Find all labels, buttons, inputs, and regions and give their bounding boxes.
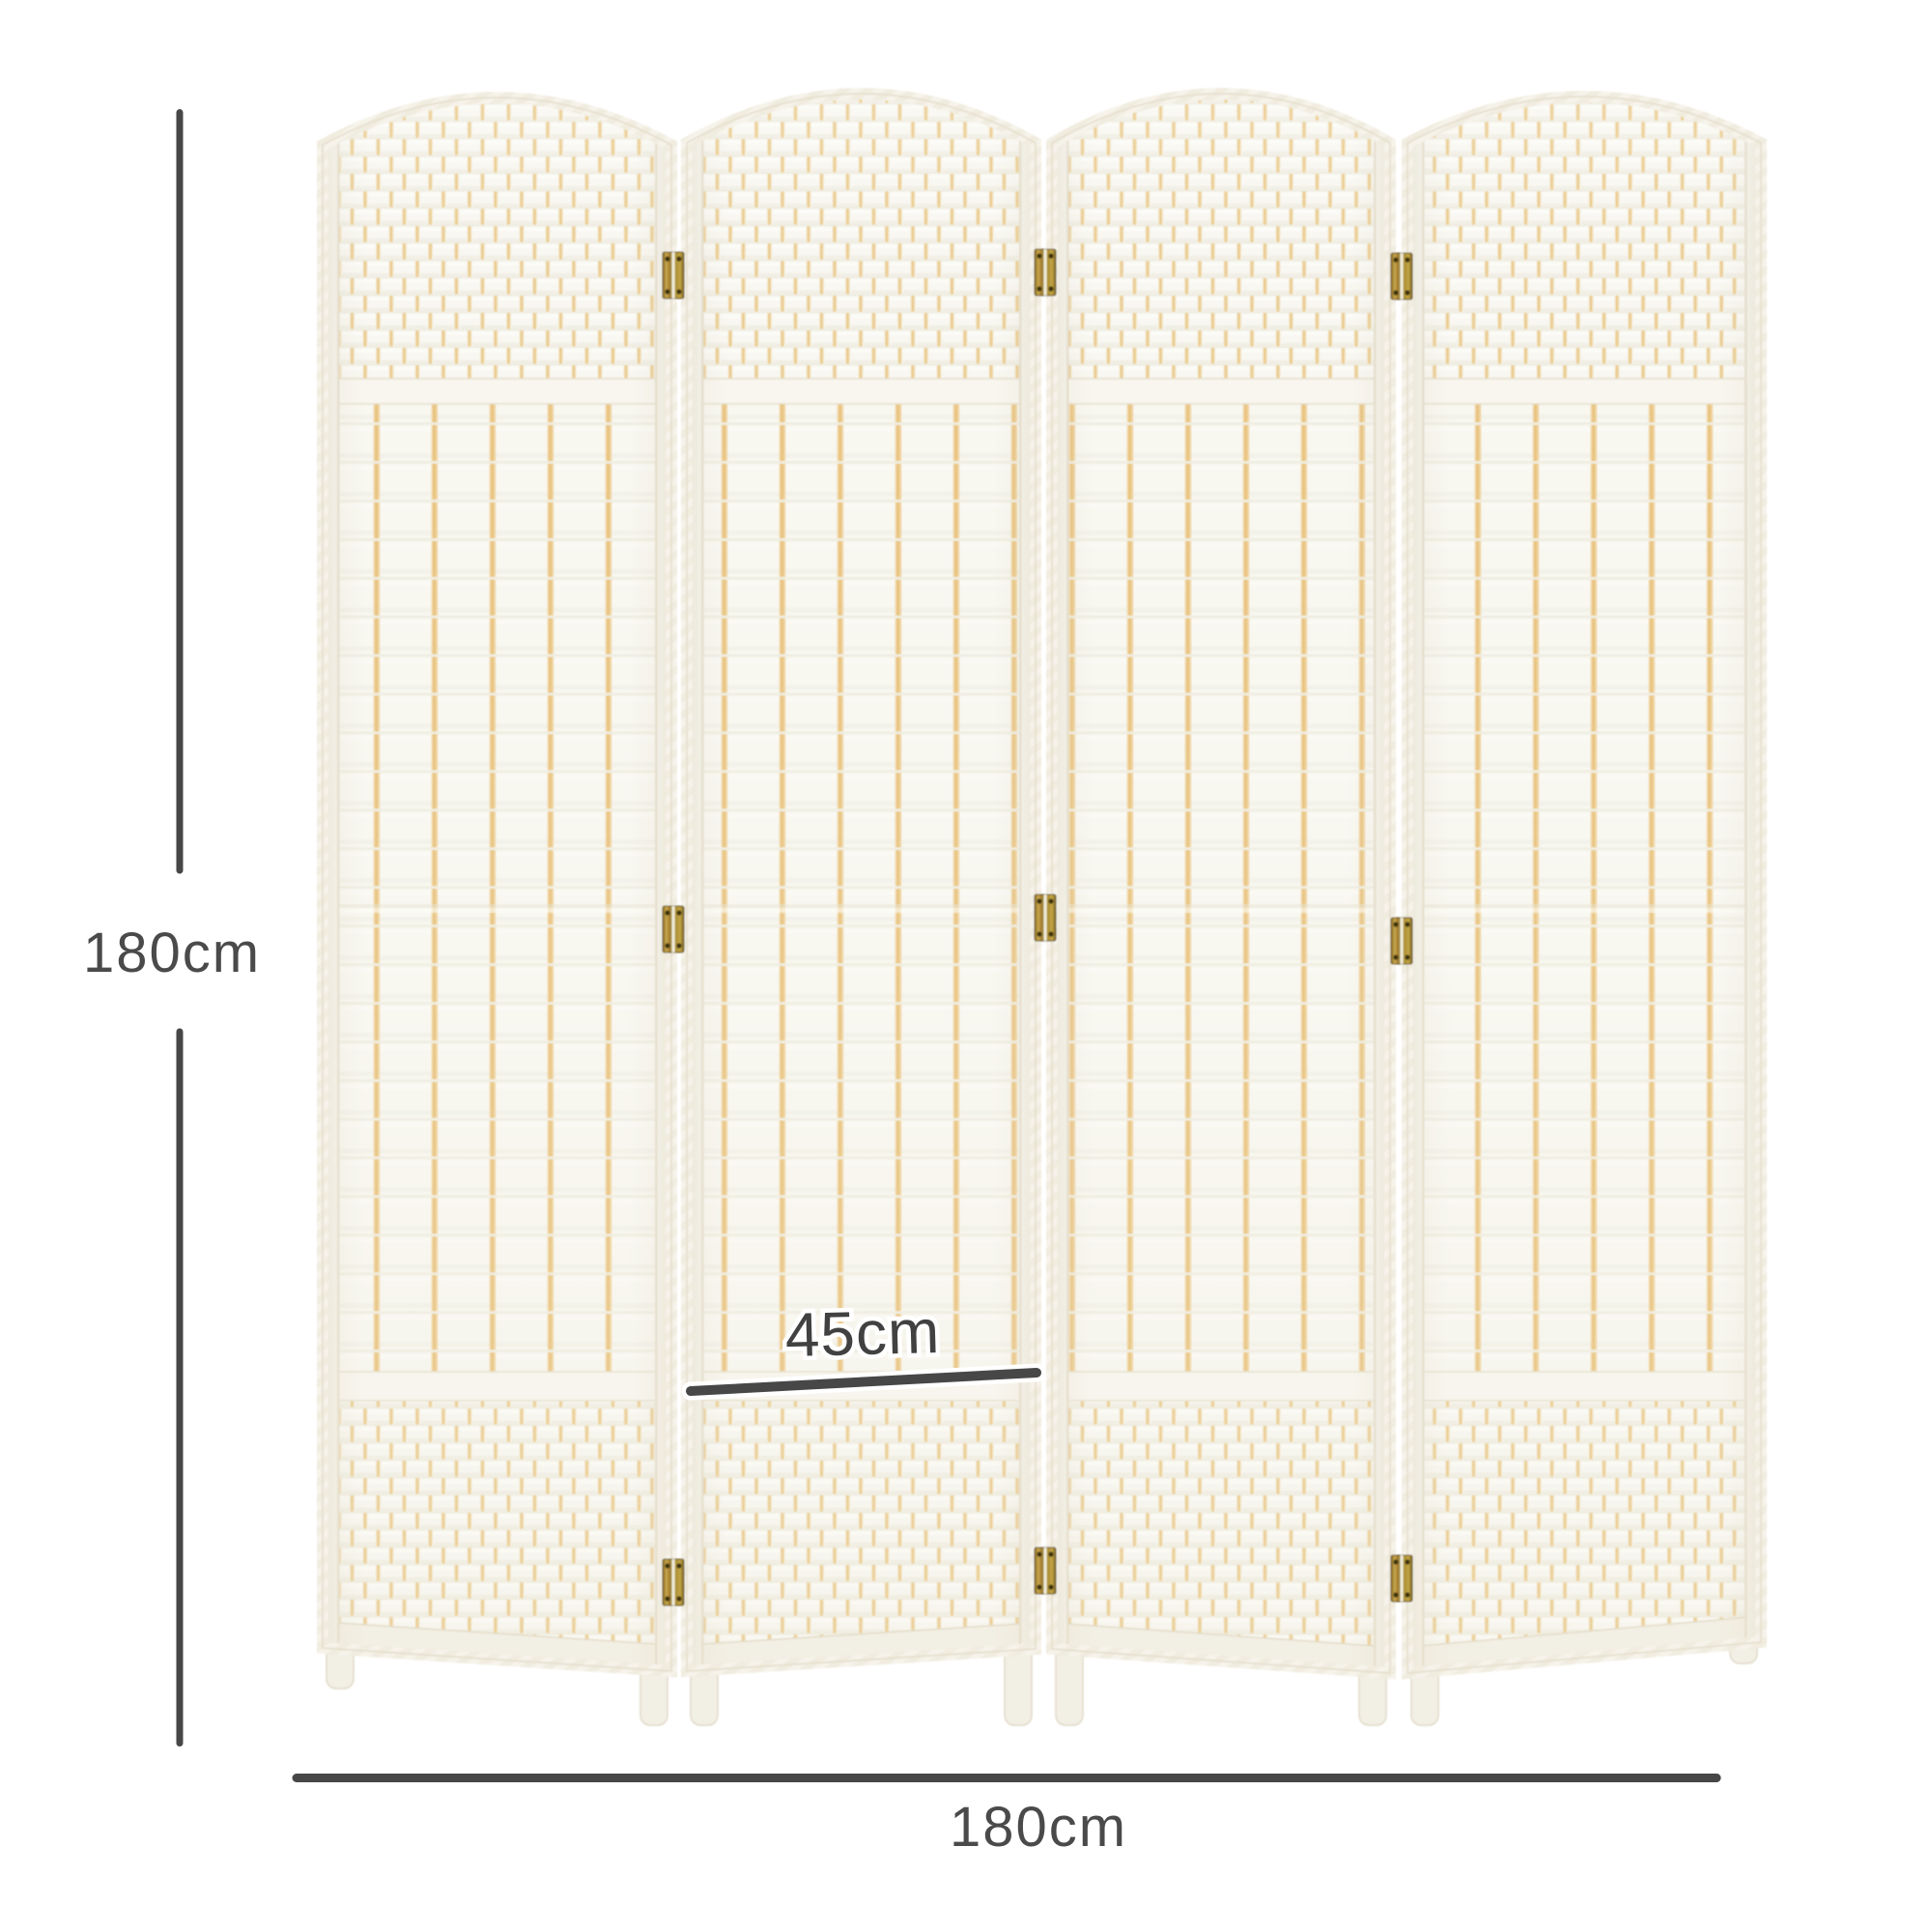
svg-text:180cm: 180cm: [950, 1796, 1127, 1859]
svg-text:180cm: 180cm: [83, 922, 261, 984]
svg-text:45cm: 45cm: [784, 1296, 941, 1370]
